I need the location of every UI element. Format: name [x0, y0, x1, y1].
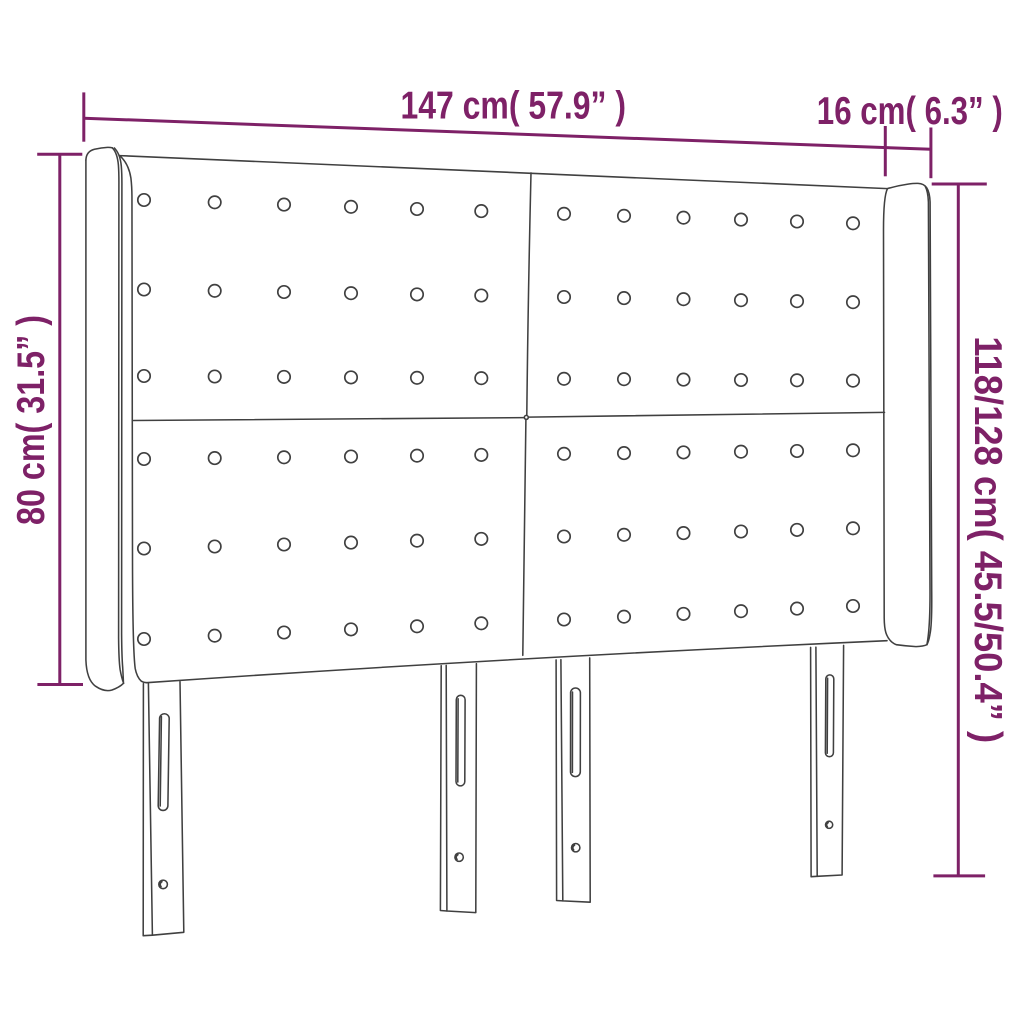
- svg-text:118/128 cm( 45.5/50.4” ): 118/128 cm( 45.5/50.4” ): [966, 336, 1009, 743]
- svg-text:16 cm( 6.3” ): 16 cm( 6.3” ): [817, 90, 1003, 133]
- svg-text:80 cm( 31.5” ): 80 cm( 31.5” ): [10, 315, 53, 525]
- svg-text:147 cm( 57.9” ): 147 cm( 57.9” ): [401, 85, 627, 128]
